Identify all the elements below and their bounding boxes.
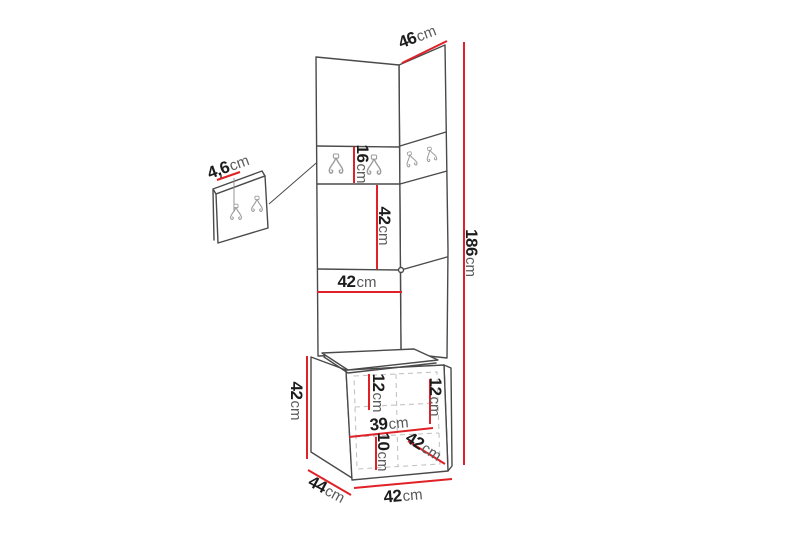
small-hook-panel — [213, 171, 268, 243]
dim-plinth-height-label: 10cm — [374, 433, 393, 472]
dim-inner-left-height-label: 12cm — [369, 374, 388, 413]
dim-hook-panel-height-label: 16cm — [353, 145, 372, 184]
dim-front-panel-width-label: 42cm — [338, 272, 377, 291]
dim-inner-right-height-label: 12cm — [426, 378, 445, 417]
dim-bench-side-width-label: 44cm — [305, 472, 348, 507]
panel-side-face — [399, 45, 448, 358]
panel-connector-dot — [399, 268, 404, 273]
dim-middle-panel-height-label: 42cm — [375, 207, 394, 246]
panel-pointer-line — [269, 158, 322, 204]
dim-bench-front-width-label: 42cm — [383, 484, 423, 506]
furniture-dimension-diagram: 46cm 186cm 16cm 42cm 42cm 4,6cm 42cm 12c… — [0, 0, 800, 533]
dim-bench-height-label: 42cm — [287, 382, 306, 421]
wall-panel — [316, 45, 448, 358]
dim-total-height-label: 186cm — [462, 229, 481, 277]
dim-inner-width-label: 39cm — [369, 412, 409, 434]
dim-line-bench-front-width — [354, 479, 452, 488]
panel-divider — [318, 269, 400, 270]
small-panel-left-edge — [213, 190, 214, 240]
